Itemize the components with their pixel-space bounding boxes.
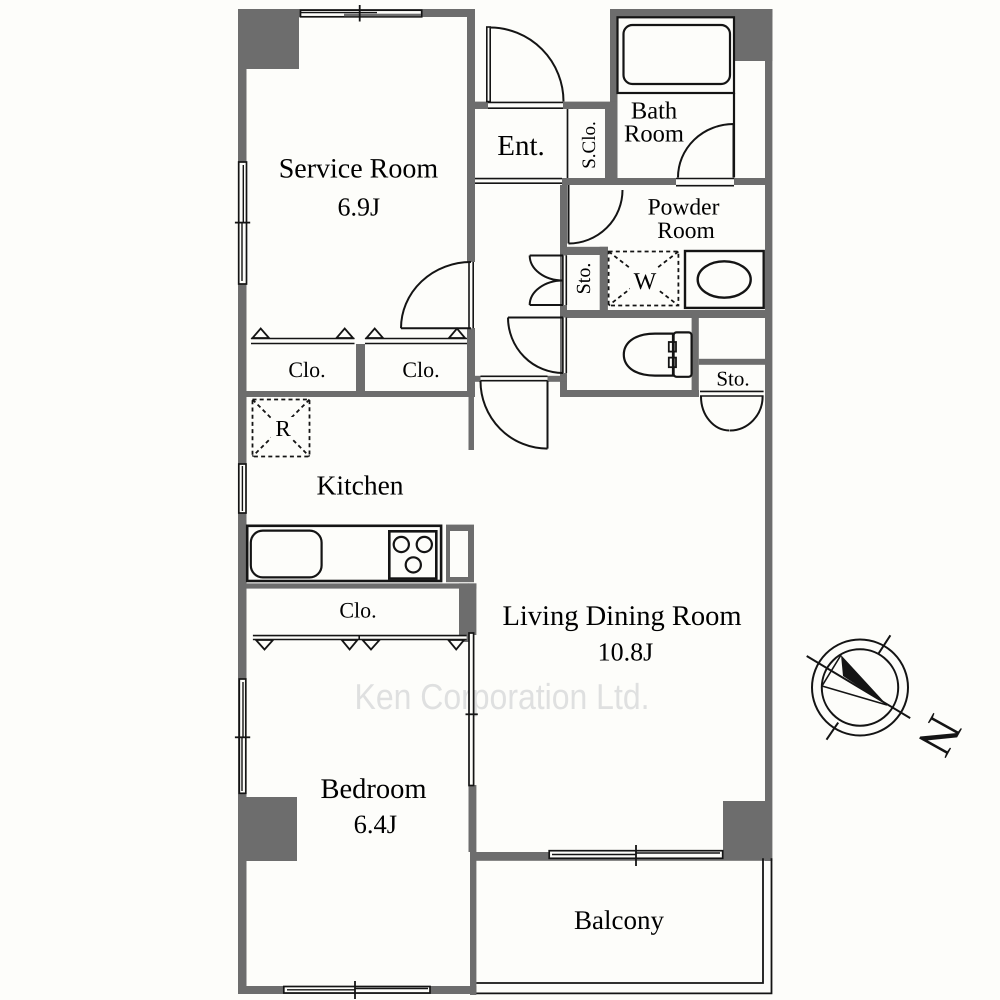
svg-text:Bedroom: Bedroom xyxy=(320,774,426,805)
svg-text:6.9J: 6.9J xyxy=(337,193,380,222)
svg-text:Clo.: Clo. xyxy=(402,357,439,382)
svg-text:Room: Room xyxy=(624,121,684,148)
svg-text:Sto.: Sto. xyxy=(716,367,749,391)
svg-text:Powder: Powder xyxy=(648,195,720,221)
svg-text:S.Clo.: S.Clo. xyxy=(579,121,600,169)
svg-text:R: R xyxy=(275,416,291,441)
svg-text:Balcony: Balcony xyxy=(574,905,664,935)
svg-text:6.4J: 6.4J xyxy=(354,809,397,839)
svg-text:Kitchen: Kitchen xyxy=(316,470,403,501)
svg-text:Service Room: Service Room xyxy=(279,154,439,185)
svg-text:Clo.: Clo. xyxy=(288,357,325,382)
svg-text:Living Dining Room: Living Dining Room xyxy=(502,601,741,632)
svg-text:Clo.: Clo. xyxy=(339,598,376,623)
svg-text:W: W xyxy=(634,269,657,295)
svg-text:Sto.: Sto. xyxy=(573,263,595,295)
svg-text:10.8J: 10.8J xyxy=(598,638,654,667)
svg-text:Ken Corporation Ltd.: Ken Corporation Ltd. xyxy=(355,676,650,717)
svg-text:Ent.: Ent. xyxy=(497,130,545,162)
svg-text:Room: Room xyxy=(657,218,714,244)
